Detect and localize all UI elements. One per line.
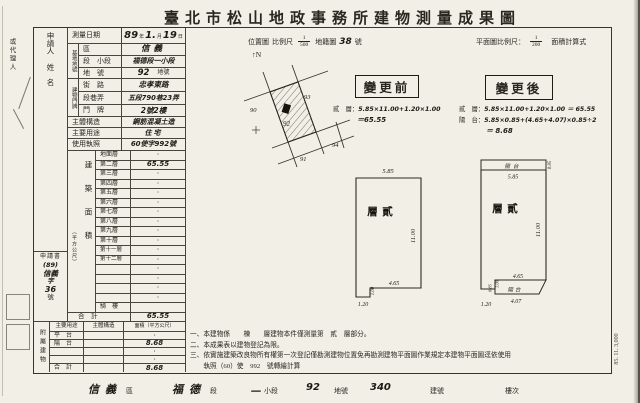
annex-total-area: 8.68 — [124, 364, 186, 372]
floor-row-value — [131, 303, 186, 313]
site-row-label: 段 小段 — [79, 56, 122, 68]
annex-row-area: 8.68 — [124, 340, 186, 348]
plan-scale-fraction: 1 200 — [530, 35, 542, 49]
print-code: 85. 11. 3,000 — [614, 326, 620, 372]
dim-bottom: 4.65 — [513, 273, 523, 280]
after-formula-result: ＝ 8.68 — [486, 126, 596, 137]
scanned-survey-form: 臺北市松山地政事務所建物測量成果圖 或代理人 85. 11. 3,000 申請人… — [0, 0, 640, 403]
survey-date-label: 測量日期 — [68, 28, 122, 44]
floor-row-label: 第二層 — [96, 161, 131, 171]
site-row-label: 地 號 — [79, 68, 122, 79]
after-plan-room-label: 貳層 — [507, 203, 519, 269]
application-doc-no-part: 字 — [47, 278, 54, 285]
dim-notch-width: 1.20 — [481, 302, 492, 308]
page-title: 臺北市松山地政事務所建物測量成果圖 — [70, 7, 615, 28]
survey-date-value: 89 年 1. 月 19 日 — [122, 28, 186, 44]
floor-row-label: 第六層 — [96, 199, 131, 209]
neighbor-parcel-label: 90 — [250, 107, 257, 114]
after-floor-formula: 5.85×11.00+1.20×1.00 ＝ 65.55 — [484, 106, 595, 113]
dim-notch-height: 1.00 — [371, 286, 376, 295]
footer-floor-label: 樓次 — [505, 386, 519, 396]
floor-row-label: 第八層 — [96, 218, 131, 228]
top-balcony-label: 陽台 — [504, 163, 521, 170]
annex-row-use — [50, 348, 84, 356]
left-page-edge — [2, 6, 3, 396]
footer-district: 信義 — [88, 381, 122, 397]
application-doc-cell: 申請書 (89) 信義 字 36 號 — [34, 252, 68, 322]
floor-row-value: · — [131, 246, 186, 256]
dim-notch-width: 1.20 — [358, 302, 369, 308]
license-value: 60使字992號 — [122, 139, 186, 151]
stamp-box — [6, 294, 30, 320]
footer-subsection-unit: 小段 — [264, 386, 278, 396]
floor-row-label — [96, 275, 131, 285]
note-line: 執照（60）使 992 號轉繪計算 — [190, 362, 610, 373]
floor-row-value: · — [131, 218, 186, 228]
footer-building-unit: 建號 — [430, 386, 444, 396]
site-group-label: 基地地號 — [68, 44, 79, 79]
notes-block: 一、本建物係 棟 層建物本件僅測量第 貳 層部分。 二、本成果表以建物登記為限。… — [190, 330, 610, 372]
after-formula-line: 陽 台：5.85×0.85+(4.65+4.07)×0.85÷2 — [459, 115, 596, 126]
plan-scale-denominator: 200 — [530, 41, 542, 48]
scale-label: 比例尺 — [272, 37, 293, 47]
survey-date-year-unit: 年 — [139, 35, 144, 40]
annex-header: 面積（平方公尺） — [124, 322, 186, 332]
scale-denominator: 500 — [298, 41, 310, 48]
annex-row-area: · — [124, 356, 186, 364]
structure-label: 主體構造 — [68, 117, 122, 128]
annex-row-structure — [84, 332, 124, 340]
floor-row-value: · — [131, 237, 186, 247]
structure-value: 鋼筋混凝土造 — [122, 117, 186, 128]
location-map-label: 位置圖 — [248, 37, 269, 47]
agent-label: 或代理人 — [6, 38, 16, 72]
applicant-label-1: 申請人 — [46, 32, 55, 55]
parcel-number: 92 — [138, 69, 150, 78]
note-line: 三、依實施建築改良物所有權第一次登記僅勘測建物位置免再勘測建物平面圖作業規定本建… — [190, 351, 610, 362]
floor-area-label-cell: 建築面積 （平方公尺） — [68, 151, 96, 313]
before-change-formulas: 貳 層：5.85×11.00+1.20×1.00 ＝65.55 — [333, 104, 441, 126]
site-row-value: 92 地號 — [122, 68, 186, 79]
annex-row-structure — [84, 340, 124, 348]
before-formula-line: 貳 層：5.85×11.00+1.20×1.00 — [333, 104, 441, 115]
application-doc-no-part: 36 — [45, 286, 56, 294]
floor-row-value: · — [131, 208, 186, 218]
footer-section: 福德 — [172, 381, 206, 397]
survey-date-day: 19 — [163, 31, 177, 41]
site-row-value: 信義 — [122, 44, 186, 56]
annex-row-use: 陽 台 — [50, 340, 84, 348]
floor-area-label: 建築面積 — [85, 161, 93, 255]
annex-row-use: 平 台 — [50, 332, 84, 340]
annex-header: 主要用途 — [50, 322, 84, 332]
survey-date-year: 89 — [124, 31, 138, 41]
floor-row-label — [96, 294, 131, 304]
dim-bottom: 4.65 — [389, 280, 400, 287]
application-doc-no-part: 號 — [47, 295, 54, 302]
before-floor-label: 貳 層： — [333, 106, 358, 113]
floor-row-value: · — [131, 180, 186, 190]
address-row-value: 2號2樓 — [122, 105, 186, 117]
floor-row-value: · — [131, 170, 186, 180]
application-doc-label: 申請書 — [40, 254, 61, 260]
dim-right: 11.00 — [535, 222, 542, 237]
area-calc-label: 面積計算式 — [551, 37, 586, 47]
scale-fraction: 1 500 — [298, 35, 310, 49]
annex-total-structure — [84, 364, 124, 372]
address-row-label: 街 路 — [79, 79, 122, 92]
floor-row-label: 第十一層 — [96, 246, 131, 256]
floor-row-label: 第三層 — [96, 170, 131, 180]
survey-date-month-unit: 月 — [157, 35, 162, 40]
floor-row-label: 第十二層 — [96, 256, 131, 266]
dim-top-balcony-height: 0.85 — [548, 160, 553, 169]
site-row-value: 福德段一小段 — [122, 56, 186, 68]
note-line: 二、本成果表以建物登記為限。 — [190, 341, 610, 352]
survey-date-month: 1. — [145, 31, 156, 41]
annex-group-label: 附屬建物 — [34, 322, 50, 372]
floor-area-unit: （平方公尺） — [71, 229, 76, 265]
floor-row-label: 第五層 — [96, 189, 131, 199]
usage-value: 住宅 — [122, 128, 186, 139]
address-group-label: 建物門牌 — [68, 79, 79, 117]
north-mark: ↑N — [252, 50, 261, 59]
address-row-label: 門 牌 — [79, 105, 122, 117]
floor-row-value: · — [131, 227, 186, 237]
annex-header: 主體構造 — [84, 322, 124, 332]
floor-row-label: 第十層 — [96, 237, 131, 247]
floor-row-label: 第七層 — [96, 208, 131, 218]
floor-row-value: · — [131, 294, 186, 304]
footer-parcel: 92 — [306, 382, 320, 393]
footer-district-unit: 區 — [126, 386, 133, 396]
applicant-label-2: 姓 名 — [46, 64, 55, 87]
floor-row-value: · — [131, 265, 186, 275]
annex-total-label: 合 計 — [50, 364, 84, 372]
after-balcony-label: 陽 台： — [459, 117, 484, 124]
dim-balcony-bottom: 4.07 — [511, 298, 523, 305]
subject-parcel-label: 92 — [283, 120, 291, 128]
note-line: 一、本建物係 棟 層建物本件僅測量第 貳 層部分。 — [190, 330, 610, 341]
footer-building: 340 — [370, 382, 391, 393]
after-change-formulas: 貳 層：5.85×11.00+1.20×1.00 ＝ 65.55 陽 台：5.8… — [459, 104, 596, 137]
before-change-title: 變更前 — [355, 75, 419, 98]
floor-row-value: · — [131, 275, 186, 285]
after-formula-line: 貳 層：5.85×11.00+1.20×1.00 ＝ 65.55 — [459, 104, 596, 115]
floor-row-value: · — [131, 151, 186, 161]
after-floor-label: 貳 層： — [459, 106, 484, 113]
floor-row-label: 第九層 — [96, 227, 131, 237]
after-change-title: 變更後 — [485, 75, 553, 100]
before-formula-result: ＝65.55 — [357, 115, 441, 126]
dim-top: 5.85 — [508, 175, 519, 181]
before-floor-plan: 5.85 11.00 4.65 1.20 1.00 — [336, 156, 468, 308]
floor-row-value: · — [131, 189, 186, 199]
address-row-value: 五段790巷23弄 — [122, 92, 186, 105]
parcel-92-hatched — [270, 82, 316, 142]
neighbor-parcel-label: 93 — [304, 94, 311, 101]
annex-row-area: · — [124, 332, 186, 340]
cadastral-label: 地籍圖 — [315, 37, 336, 47]
dim-right: 11.00 — [410, 228, 417, 243]
usage-label: 主要用途 — [68, 128, 122, 139]
address-row-value: 忠孝東路 — [122, 79, 186, 92]
handwritten-stroke — [13, 109, 24, 129]
floor-row-label — [96, 284, 131, 294]
footer-parcel-unit: 地號 — [334, 386, 348, 396]
before-plan-room-label: 貳層 — [382, 206, 394, 274]
site-row-label: 區 — [79, 44, 122, 56]
floor-row-value: · — [131, 256, 186, 266]
annex-row-use — [50, 356, 84, 364]
dim-notch-height: 1.00 — [495, 279, 500, 288]
after-balcony-formula: 5.85×0.85+(4.65+4.07)×0.85÷2 — [484, 117, 596, 124]
dim-balcony-height: 0.85 — [488, 283, 493, 292]
floor-row-label: 地面層 — [96, 151, 131, 161]
application-doc-no-part: 信義 — [43, 270, 58, 278]
before-floor-formula: 5.85×11.00+1.20×1.00 — [358, 106, 440, 113]
floor-row-value: · — [131, 284, 186, 294]
cadastral-sheet-no: 38 — [339, 37, 352, 47]
cadastral-sheet-unit: 號 — [355, 37, 362, 47]
stamp-box — [6, 324, 30, 350]
floor-row-value: · — [131, 199, 186, 209]
neighbor-parcel-label: 94 — [332, 142, 339, 149]
applicant-name-cell: 申請人 姓 名 — [34, 28, 68, 252]
floor-total-label: 合 計 — [68, 313, 131, 323]
footer-section-unit: 段 — [210, 386, 217, 396]
floor-row-label: 騎 樓 — [96, 303, 131, 313]
floor-row-label: 第四層 — [96, 180, 131, 190]
plan-scale-label: 平面圖比例尺： — [476, 37, 525, 47]
bottom-balcony-label: 陽台 — [507, 287, 522, 294]
survey-date-day-unit: 日 — [178, 35, 183, 40]
floor-row-label — [96, 265, 131, 275]
floor-total-value: 65.55 — [131, 313, 186, 323]
dim-top: 5.85 — [382, 168, 394, 175]
applicant-name-label: 申請人 姓 名 — [44, 32, 57, 86]
license-label: 使用執照 — [68, 139, 122, 151]
annex-row-structure — [84, 356, 124, 364]
annex-row-area: · — [124, 348, 186, 356]
parcel-suffix: 地號 — [157, 70, 169, 76]
floor-row-value: 65.55 — [131, 161, 186, 171]
address-row-label: 段巷弄 — [79, 92, 122, 105]
application-doc-no-part: (89) — [43, 262, 58, 269]
footer-subsection: 一 — [250, 383, 260, 398]
handwritten-stroke — [18, 77, 31, 109]
plan-scale-header: 平面圖比例尺： 1 200 面積計算式 — [476, 35, 586, 49]
annex-row-structure — [84, 348, 124, 356]
neighbor-parcel-label: 91 — [300, 156, 307, 163]
location-map-header: 位置圖 比例尺 1 500 地籍圖 38 號 — [248, 35, 362, 49]
after-floor-plan: 陽台 0.85 5.85 11.00 4.65 陽台 4.07 1.20 0.8… — [461, 148, 611, 313]
